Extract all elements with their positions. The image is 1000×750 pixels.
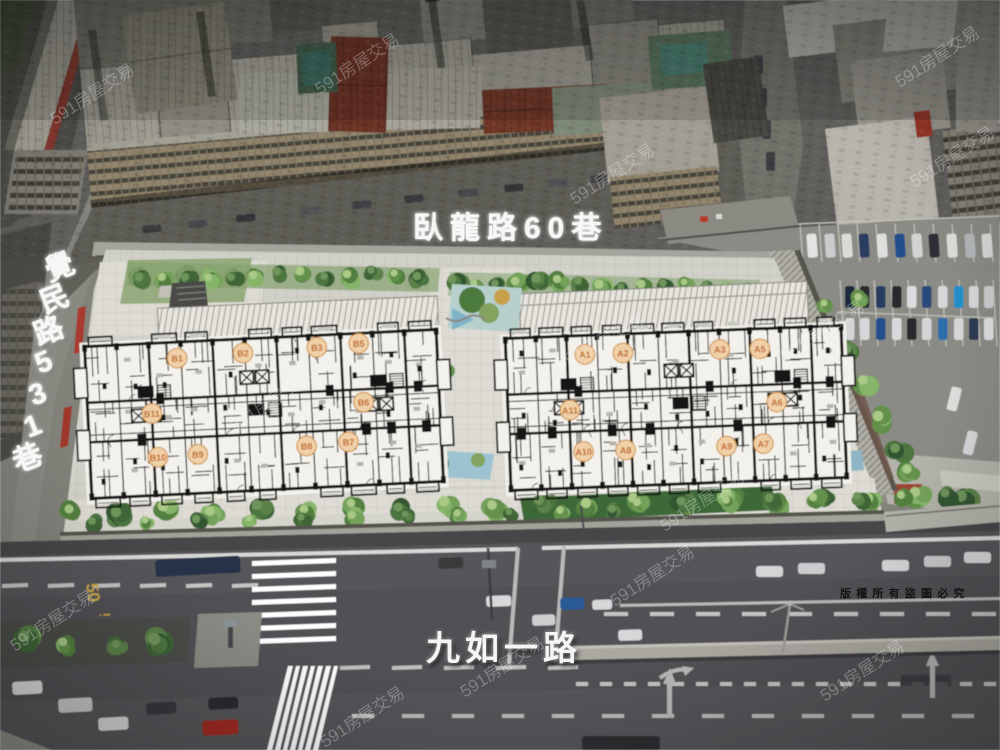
svg-text:版權所有盜圖必究: 版權所有盜圖必究 [840,586,970,600]
svg-text:臥龍路60巷: 臥龍路60巷 [413,211,608,245]
